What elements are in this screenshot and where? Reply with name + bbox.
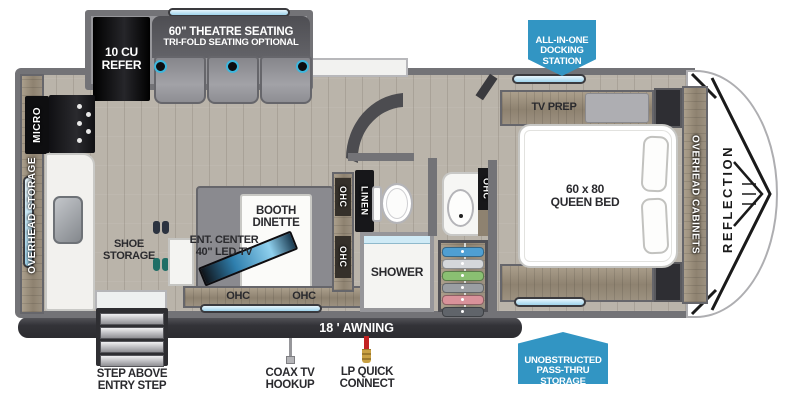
- ohc-left-label: OHC: [221, 291, 255, 303]
- shower-vanity-wall: [428, 158, 437, 236]
- pass-thru-badge: UNOBSTRUCTED PASS-THRU STORAGE: [518, 332, 608, 384]
- ohc-right-label: OHC: [287, 291, 321, 303]
- bedroom-window-bottom: [514, 297, 586, 307]
- bedroom-window-top: [512, 74, 586, 84]
- ohc-lower-cabinet: OHC: [335, 236, 351, 278]
- stove: [49, 95, 95, 153]
- bedroom-corner-cabinet: [654, 88, 682, 128]
- roof-vent: [310, 58, 408, 77]
- toilet-bowl: [381, 183, 413, 224]
- bedroom-corner-cabinet: [654, 262, 682, 302]
- vanity-sink: [447, 189, 474, 227]
- mid-cabinet-column: OHC OHC: [332, 172, 354, 292]
- step-tread: [100, 313, 164, 325]
- ohc-upper-cabinet: OHC: [335, 178, 351, 216]
- bed-pillow: [641, 135, 670, 192]
- awning-bar: 18 ' AWNING: [18, 317, 522, 338]
- coax-label: COAX TV HOOKUP: [256, 367, 324, 391]
- entry-landing: [95, 290, 167, 310]
- bath-wall: [348, 153, 414, 161]
- refrigerator: 10 CU REFER: [93, 17, 150, 101]
- shower: SHOWER: [360, 232, 434, 312]
- hanging-clothes: [442, 247, 484, 257]
- docking-station-label: ALL-IN-ONE DOCKING STATION: [536, 35, 589, 67]
- shower-glass: [364, 236, 430, 244]
- overhead-storage-label: OVERHEAD STORAGE: [27, 157, 38, 274]
- shoe-storage-label: SHOE STORAGE: [98, 239, 160, 262]
- refrigerator-label: 10 CU REFER: [102, 46, 142, 72]
- hanging-clothes: [442, 283, 484, 293]
- step-tread: [100, 341, 164, 353]
- vanity-faucet-dot: [459, 214, 463, 218]
- cupholder: [226, 60, 239, 73]
- microwave-label: MICRO: [32, 107, 43, 143]
- shower-label: SHOWER: [371, 266, 423, 279]
- tv-prep-label: TV PREP: [508, 102, 600, 114]
- floorplan-canvas: 18 ' AWNING 10 CU REFER 60" THEATRE SEAT…: [0, 0, 800, 400]
- overhead-cabinets-strip: OVERHEAD CABINETS: [682, 86, 708, 304]
- theatre-seat-back: 60" THEATRE SEATING TRI-FOLD SEATING OPT…: [152, 16, 310, 58]
- hanging-clothes: [442, 271, 484, 281]
- theatre-seating-sublabel: TRI-FOLD SEATING OPTIONAL: [163, 38, 298, 48]
- hanging-clothes: [442, 295, 484, 305]
- overhead-storage-label-wrap: OVERHEAD STORAGE: [20, 130, 44, 300]
- lp-label: LP QUICK CONNECT: [334, 366, 400, 390]
- cupholder: [296, 60, 309, 73]
- wardrobe: [438, 240, 488, 312]
- awning-label: 18 ' AWNING: [319, 321, 394, 335]
- hanging-clothes: [442, 259, 484, 269]
- dinette-window: [200, 304, 322, 313]
- entry-steps: [96, 308, 168, 366]
- lp-connector-red: [364, 336, 369, 349]
- theatre-seating: 60" THEATRE SEATING TRI-FOLD SEATING OPT…: [152, 16, 310, 102]
- coax-connector-icon: [286, 356, 295, 364]
- ohc-upper-label: OHC: [338, 186, 348, 208]
- ohc-lower-label: OHC: [338, 246, 348, 268]
- brand-label: REFLECTION: [720, 145, 735, 253]
- shoe-icon: [153, 258, 160, 271]
- lp-connector-brass: [362, 349, 371, 363]
- coax-stem: [289, 338, 292, 358]
- brand-label-wrap: REFLECTION: [716, 126, 738, 272]
- bed-pillow: [641, 197, 670, 254]
- linen-label: LINEN: [360, 186, 370, 216]
- step-tread: [100, 327, 164, 339]
- queen-bed-label: 60 x 80 QUEEN BED: [532, 183, 638, 208]
- cupholder: [154, 60, 167, 73]
- shoe-icon: [153, 221, 160, 234]
- ent-center-label: ENT. CENTER 40" LED TV: [172, 235, 276, 258]
- overhead-cabinets-label: OVERHEAD CABINETS: [690, 135, 701, 254]
- bath-bedroom-wall: [488, 160, 497, 312]
- step-tread: [100, 355, 164, 367]
- entry-step-label: STEP ABOVE ENTRY STEP: [77, 368, 187, 392]
- hanging-clothes: [442, 307, 484, 317]
- pass-thru-label: UNOBSTRUCTED PASS-THRU STORAGE: [524, 355, 601, 387]
- burner-dots: [77, 104, 82, 109]
- shoe-icon: [162, 221, 169, 234]
- microwave: MICRO: [25, 96, 49, 154]
- kitchen-sink: [53, 196, 83, 244]
